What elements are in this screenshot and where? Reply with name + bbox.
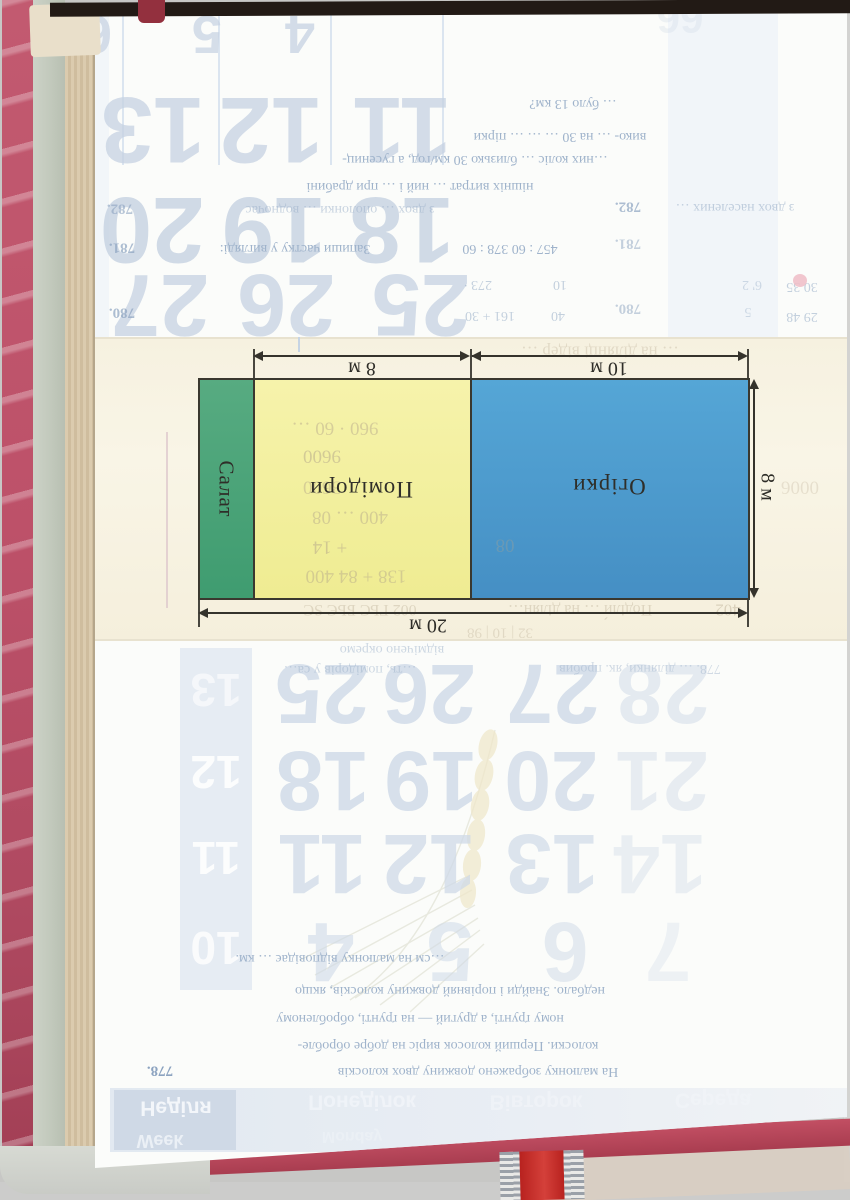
plastic-sheen bbox=[2, 0, 33, 1172]
ghost-text-line: з двох … ополонки … водночас bbox=[245, 202, 434, 216]
ghost-text-line: колоски. Перший колосок виріс на добре о… bbox=[298, 1038, 599, 1052]
white-page: 65466131211201918272625 … було 13 км?вик… bbox=[0, 0, 850, 1200]
ghost-text-line: 10 bbox=[553, 277, 567, 291]
calendar-day-label: Week bbox=[137, 1132, 184, 1150]
calendar-day-label: Вівторок bbox=[490, 1092, 583, 1113]
pink-dot-mark bbox=[793, 274, 807, 287]
ribbon-edge-right bbox=[563, 1150, 584, 1200]
ghost-text-line: …них коліс … близько 30 км/год, а гусени… bbox=[342, 152, 608, 166]
dim-tick bbox=[747, 600, 749, 627]
ghost-text-line: Запиши частку у вигляді: bbox=[220, 241, 370, 255]
dim-label-8m-right: 8 м bbox=[756, 473, 779, 501]
ghost-text-line: 782. bbox=[615, 199, 641, 214]
ghost-text-line: ному ґрунті, а другий — на ґрунті, оброб… bbox=[276, 1011, 564, 1025]
arrowhead bbox=[460, 351, 470, 361]
ghost-number: 7 bbox=[645, 910, 692, 994]
ghost-text-line: На малюнку зображено довжину двох колоск… bbox=[338, 1064, 618, 1078]
ghost-rule bbox=[330, 5, 332, 165]
ghost-text-line: 273 ∙ bbox=[464, 277, 492, 291]
field-cucumbers-label: Огірки bbox=[572, 473, 645, 499]
calendar-day-label: Середа bbox=[675, 1090, 751, 1111]
ghost-text-line: 781. bbox=[109, 240, 135, 255]
ribbon-red-center bbox=[519, 1150, 564, 1200]
ghost-text-line: 778. bbox=[147, 1063, 173, 1078]
ghost-blue-tick bbox=[298, 337, 300, 352]
dim-tick bbox=[198, 600, 200, 627]
ghost-text-line: з двох населених … bbox=[676, 200, 795, 214]
ghost-text-cream-line: Поділи́ … на ділян… bbox=[508, 601, 652, 617]
ghost-box-number: 12 bbox=[190, 749, 241, 795]
bookmark-ribbon bbox=[499, 1150, 584, 1200]
ghost-text-yellow-line: 9600 bbox=[303, 447, 341, 466]
scanned-book-photo: 65466131211201918272625 … було 13 км?вик… bbox=[0, 0, 850, 1200]
field-lettuce-label: Салат bbox=[214, 461, 239, 518]
ghost-text-cream-line: 002 ГЬС БЬЄ ЅС bbox=[303, 601, 416, 617]
ghost-number: 13 bbox=[505, 822, 598, 906]
window-top-edge bbox=[95, 337, 850, 339]
ghost-box-number: 11 bbox=[192, 835, 241, 881]
arrowhead bbox=[471, 351, 481, 361]
ghost-text-cream-line: 32 | 10 | 98 bbox=[467, 625, 533, 640]
ghost-text-line: вико- … на 30 … … … пірки bbox=[474, 129, 647, 143]
ghost-number: 12 bbox=[382, 822, 475, 906]
ghost-text-cream-line: 0006 bbox=[781, 478, 819, 497]
dim-label-20m: 20 м bbox=[409, 614, 447, 637]
ghost-number: 18 bbox=[276, 739, 369, 823]
cover-corner-red-mark bbox=[138, 0, 165, 23]
ghost-text-line: 457 : 60 378 : 60 bbox=[462, 241, 557, 255]
plastic-wrap-strip bbox=[33, 0, 65, 1178]
ghost-text-line: …ть, помідорів у са… bbox=[284, 662, 417, 676]
dim-line-bottom-20m bbox=[200, 612, 746, 614]
ghost-number: 14 bbox=[613, 822, 706, 906]
dim-tick bbox=[747, 349, 749, 378]
dim-label-8m-top: 8 м bbox=[348, 357, 376, 380]
ghost-text-line: 6' 2 bbox=[742, 277, 762, 291]
ghost-text-cream-line: 402 bbox=[715, 602, 741, 619]
ghost-text-yellow-line: 08 bbox=[496, 536, 515, 555]
ghost-text-line: 778. … ділянки, як. пробив bbox=[559, 661, 721, 675]
ghost-number: 12 bbox=[219, 83, 324, 177]
field-tomatoes-label: Помідори bbox=[309, 476, 413, 502]
ghost-number: 6 bbox=[542, 910, 589, 994]
ghost-pink-rule bbox=[166, 432, 168, 608]
ghost-number: 13 bbox=[101, 83, 206, 177]
ghost-text-line: 782. bbox=[107, 201, 133, 216]
ghost-text-line: 29 48 bbox=[786, 309, 818, 323]
ghost-text-line: 780. bbox=[615, 301, 641, 316]
ghost-text-line: 40 bbox=[551, 308, 565, 322]
ghost-number: 26 bbox=[237, 261, 335, 349]
ghost-number: 11 bbox=[278, 822, 367, 906]
ribbon-edge-left bbox=[499, 1152, 520, 1200]
calendar-day-label: Понеділок bbox=[308, 1092, 416, 1113]
dim-label-10m: 10 м bbox=[590, 357, 628, 380]
divider-tomato-cucumber bbox=[470, 380, 472, 598]
ghost-text-line: 780. bbox=[109, 305, 135, 320]
ghost-text-line: недбало. Знайди і порівняй довжину колос… bbox=[295, 983, 605, 997]
calendar-day-label: Monday bbox=[322, 1128, 382, 1144]
ghost-text-line: нішніх витрат … ний і … при драбині bbox=[306, 179, 533, 193]
ghost-box-number: 13 bbox=[190, 667, 241, 713]
ghost-text-line: 161 + 30 bbox=[465, 308, 515, 322]
ghost-text-line: 781. bbox=[615, 236, 641, 251]
ghost-number: 25 bbox=[372, 261, 470, 349]
ghost-text-line: 5 bbox=[745, 304, 752, 318]
arrowhead bbox=[749, 588, 759, 598]
ghost-text-line: … було 13 км? bbox=[529, 96, 616, 110]
dim-tick bbox=[470, 349, 472, 378]
dim-tick bbox=[253, 349, 255, 378]
ghost-box-number: 10 bbox=[190, 925, 241, 971]
ghost-number: 20 bbox=[504, 739, 597, 823]
ghost-text-line: …см на малюнку відповідає … км. bbox=[235, 951, 444, 965]
ghost-number: 19 bbox=[384, 739, 477, 823]
divider-lettuce-tomato bbox=[253, 380, 255, 598]
calendar-day-label: Неділя bbox=[140, 1098, 212, 1119]
garden-plot-diagram bbox=[198, 378, 750, 600]
arrowhead bbox=[253, 351, 263, 361]
ghost-text-yellow-line: 400 … 08 bbox=[312, 508, 388, 527]
ghost-number: 21 bbox=[615, 739, 708, 823]
ghost-text-yellow-line: 960 · 60 … bbox=[291, 419, 378, 438]
ghost-text-yellow-line: + 14 bbox=[313, 538, 347, 557]
arrowhead bbox=[198, 608, 208, 618]
ghost-text-yellow-line: 138 + 84 400 bbox=[306, 567, 407, 586]
arrowhead bbox=[749, 379, 759, 389]
ghost-text-line: відмічено окремо bbox=[340, 642, 445, 656]
